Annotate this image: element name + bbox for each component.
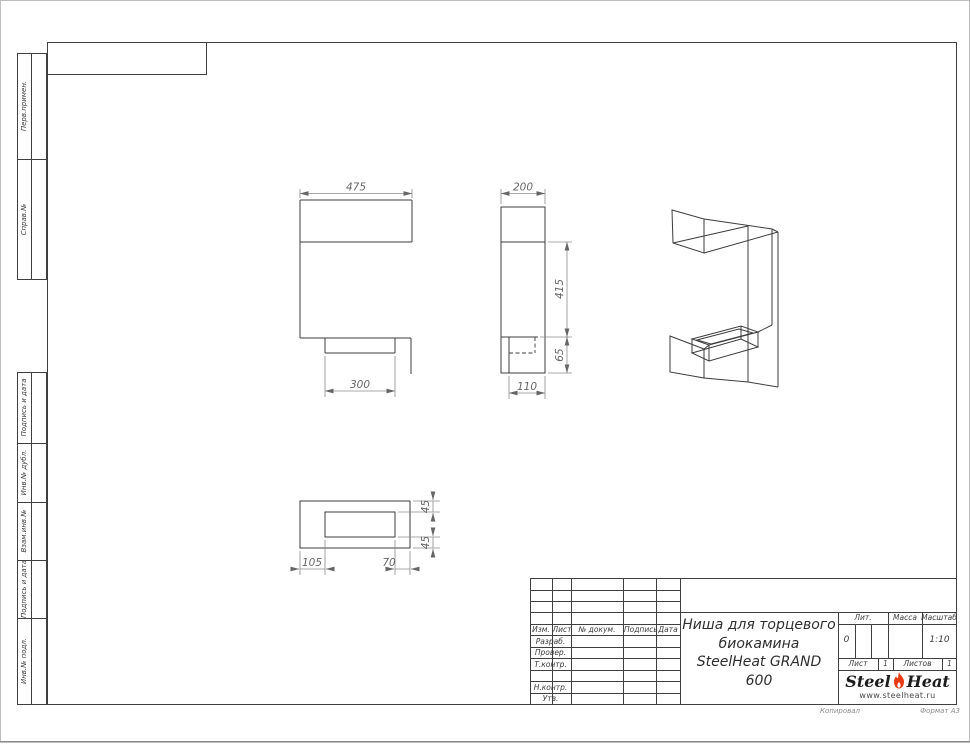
logo-heat: Heat [907,672,950,691]
title-line-3: SteelHeat GRAND 600 [682,653,836,690]
row-tkontr: Т.контр. [530,660,571,670]
sidebar-item-podpis-data-2: Подпись и дата [18,560,31,618]
sheet-label: Лист [838,659,878,669]
title-grid-line [530,658,680,659]
title-grid-line [530,601,680,602]
paper-bottom-edge [0,741,970,742]
title-grid-line [871,624,872,658]
row-prover: Провер. [530,648,571,658]
drawing-sheet: Перв.примен. Справ.№ Подпись и дата Инв.… [0,0,970,749]
row-razrab: Разраб. [530,637,571,647]
lit-label: Лит. [843,613,883,623]
mass-label: Масса [888,613,922,623]
title-grid-line [530,612,680,613]
sheet-value: 1 [878,659,893,669]
sidebar-divider [31,372,32,705]
sidebar-item-inv-podl: Инв.№ подл. [18,618,31,704]
title-grid-line [571,578,572,705]
title-grid-line [530,590,680,591]
row-utv: Утв. [530,694,571,704]
col-doc: № докум. [577,625,617,635]
scale-value: 1:10 [922,635,957,645]
sheets-value: 1 [942,659,957,669]
sidebar-item-podpis-data-1: Подпись и дата [18,372,31,443]
title-grid-line [623,578,624,705]
title-grid-line [530,635,680,636]
footer-copied: Копировал [795,707,885,715]
sidebar-item-sprav-no: Справ.№ [18,159,31,280]
sidebar-item-inv-dubl: Инв.№ дубл. [18,443,31,502]
title-line-1: Ниша для торцевого [682,616,836,635]
sheets-label: Листов [893,659,942,669]
col-sign: Подпись [624,625,656,635]
title-grid-line [530,681,680,682]
sidebar-divider [31,53,32,280]
title-grid-line [855,624,856,658]
document-title: Ниша для торцевого биокамина SteelHeat G… [682,614,836,676]
title-grid-line [656,578,657,705]
title-grid-line [530,670,680,671]
sidebar-item-perv-primen: Перв.примен. [18,53,31,159]
logo-url: www.steelheat.ru [839,691,956,700]
row-nkontr: Н.контр. [530,683,571,693]
sidebar-item-vzam-inv: Взам.инв.№ [18,502,31,560]
lit-value: 0 [838,635,855,645]
scale-label: Масштаб [921,613,957,623]
col-date: Дата [653,625,683,635]
col-list: Лист [547,625,577,635]
title-grid-line [680,578,681,705]
designation-box [47,42,207,75]
steelheat-logo: Steel Heat www.steelheat.ru [839,671,956,704]
footer-format: Формат А3 [895,707,970,715]
logo-steel: Steel [845,672,890,691]
title-line-2: биокамина [682,635,836,654]
flame-icon [892,672,906,690]
